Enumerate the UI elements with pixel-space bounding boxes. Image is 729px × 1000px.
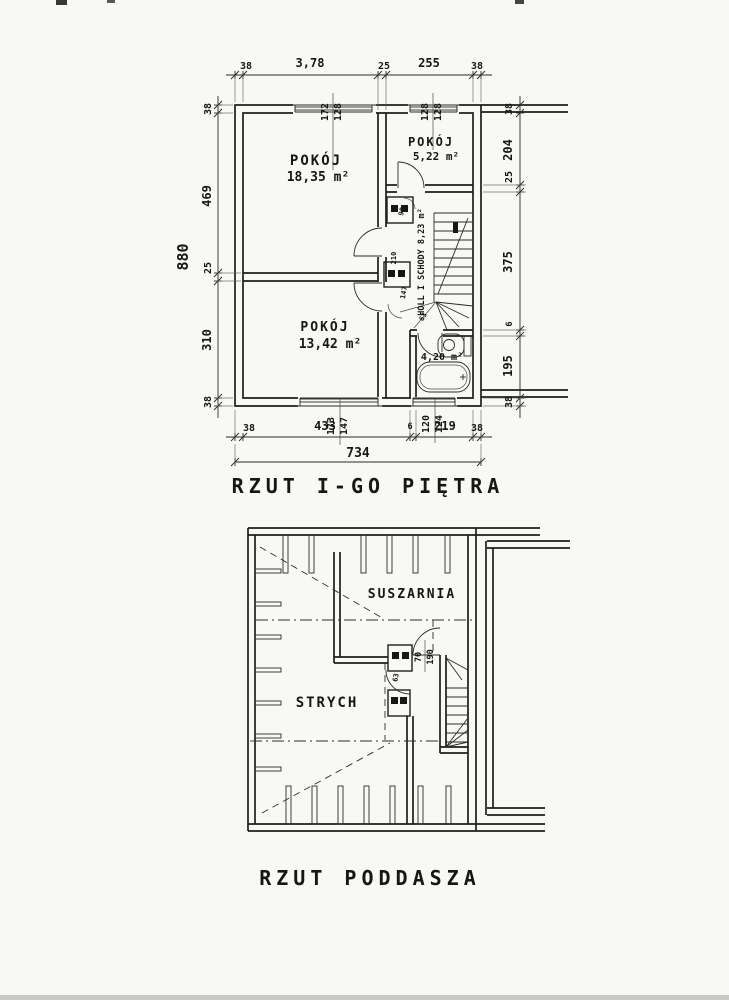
room2-area: 5,22 m² (413, 150, 459, 163)
attic-plan: SUSZARNIA STRYCH 70 190 63 RZUT PODDASZA (248, 528, 570, 890)
floor1-dim-right: 38 204 25 375 6 195 38 (483, 96, 526, 418)
floor1-stairs (400, 213, 473, 330)
win-br-w: 120 (421, 415, 432, 433)
room3-area: 13,42 m² (299, 337, 362, 352)
dim-top-2: 25 (378, 61, 390, 72)
drying-room-label: SUSZARNIA (368, 587, 456, 602)
dim-right-5: 195 (501, 355, 515, 377)
dim-left-0: 38 (203, 103, 214, 115)
attic-door-w: 70 (414, 652, 424, 662)
bath-area: 4,20 m² (421, 352, 463, 363)
floor-plan-drawing: POKÓJ 18,35 m² POKÓJ 5,22 m² POKÓJ 13,42… (0, 0, 729, 1000)
dim-right-2: 25 (504, 171, 515, 183)
floor1-dim-bottom: 38 433 6 219 38 734 (226, 410, 492, 466)
toilet-tank (464, 336, 471, 356)
room1-name: POKÓJ (290, 151, 342, 169)
room2-name: POKÓJ (408, 134, 454, 149)
door-note-3: 147 (399, 286, 409, 300)
hall-label: HOLL I SCHODY 8,23 m² (417, 208, 427, 315)
attic-rafter-ticks (255, 535, 451, 824)
door-note-2: 210 (390, 252, 398, 265)
floor1-bath-fixtures (417, 334, 471, 392)
first-floor-plan: POKÓJ 18,35 m² POKÓJ 5,22 m² POKÓJ 13,42… (174, 56, 568, 498)
dim-top-4: 38 (471, 61, 483, 72)
dim-bot-4: 38 (471, 423, 483, 434)
floor1-title: RZUT I-GO PIĘTRA (232, 474, 505, 498)
attic-stairs (446, 658, 468, 747)
win-tr-w: 128 (420, 103, 431, 121)
scanned-floor-plan-page: POKÓJ 18,35 m² POKÓJ 5,22 m² POKÓJ 13,42… (0, 0, 729, 1000)
attic-door-h: 190 (426, 649, 436, 664)
win-bl-h: 147 (339, 417, 350, 435)
dim-bot-1: 433 (314, 419, 336, 433)
dim-left-2: 25 (203, 262, 214, 274)
attic-small-door-note: 63 (391, 673, 400, 683)
dim-top-3: 255 (418, 56, 440, 70)
room1-area: 18,35 m² (287, 170, 350, 185)
attic-title: RZUT PODDASZA (259, 866, 481, 890)
dim-bot-0: 38 (243, 423, 255, 434)
dim-top-1: 3,78 (296, 56, 325, 70)
dim-right-3: 375 (501, 251, 515, 273)
win-tl-w: 172 (320, 103, 331, 121)
floor1-dim-top: 38 3,78 25 255 38 (226, 56, 492, 110)
dim-top-0: 38 (240, 61, 252, 72)
dim-left-1: 469 (200, 185, 214, 207)
attic-room-label: STRYCH (296, 695, 359, 711)
floor1-dim-left: 38 469 25 310 38 880 (174, 96, 241, 418)
dim-right-1: 204 (501, 139, 515, 161)
room3-name: POKÓJ (300, 319, 349, 335)
scan-artifacts (0, 0, 729, 1000)
dim-right-0: 38 (504, 103, 515, 115)
dim-bot-3: 219 (434, 419, 456, 433)
win-tr-h: 128 (433, 103, 444, 121)
dim-left-total: 880 (174, 243, 192, 270)
dim-right-4: 6 (505, 321, 515, 326)
floor1-walls (235, 105, 568, 406)
attic-walls (248, 528, 570, 831)
dim-right-6: 38 (504, 396, 515, 408)
win-tl-h: 128 (333, 103, 344, 121)
dim-bot-total: 734 (346, 446, 370, 461)
dim-bot-2: 6 (407, 422, 412, 432)
dim-left-3: 310 (200, 329, 214, 351)
dim-left-4: 38 (203, 396, 214, 408)
